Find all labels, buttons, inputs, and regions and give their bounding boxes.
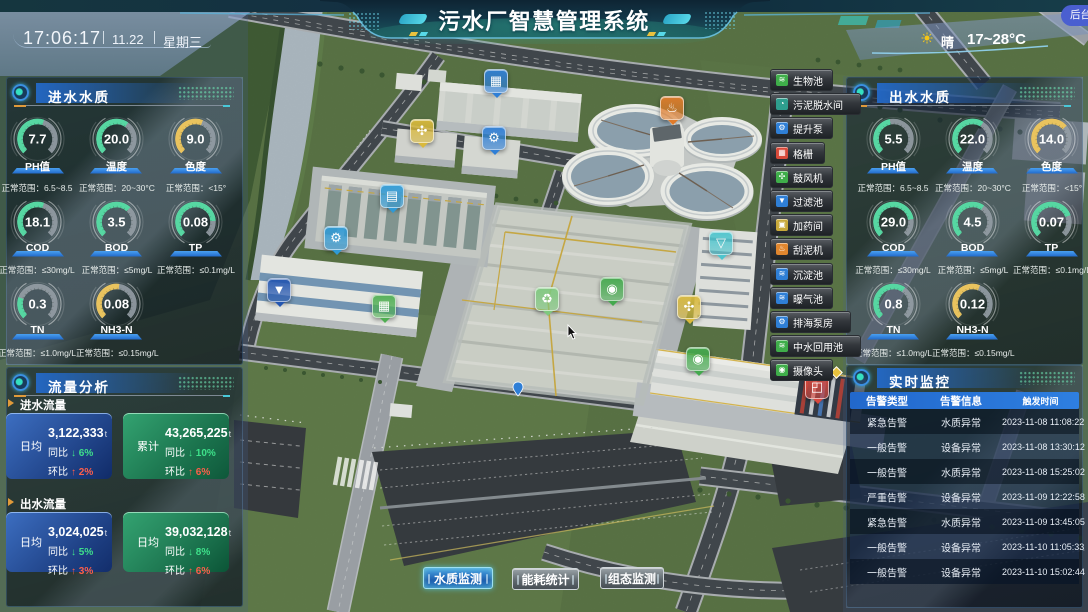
svg-text:9.0: 9.0	[186, 132, 204, 147]
svg-text:0.12: 0.12	[960, 297, 985, 312]
svg-text:29.0: 29.0	[881, 215, 906, 230]
svg-text:5.5: 5.5	[884, 132, 902, 147]
svg-text:7.7: 7.7	[28, 132, 46, 147]
svg-text:0.3: 0.3	[28, 297, 46, 312]
svg-text:18.1: 18.1	[25, 215, 50, 230]
svg-text:4.5: 4.5	[963, 215, 981, 230]
svg-text:20.0: 20.0	[104, 132, 129, 147]
svg-text:0.08: 0.08	[183, 215, 208, 230]
svg-text:0.07: 0.07	[1039, 215, 1064, 230]
svg-text:14.0: 14.0	[1039, 132, 1064, 147]
svg-text:22.0: 22.0	[960, 132, 985, 147]
svg-text:0.8: 0.8	[884, 297, 902, 312]
svg-text:0.08: 0.08	[104, 297, 129, 312]
svg-text:3.5: 3.5	[107, 215, 125, 230]
